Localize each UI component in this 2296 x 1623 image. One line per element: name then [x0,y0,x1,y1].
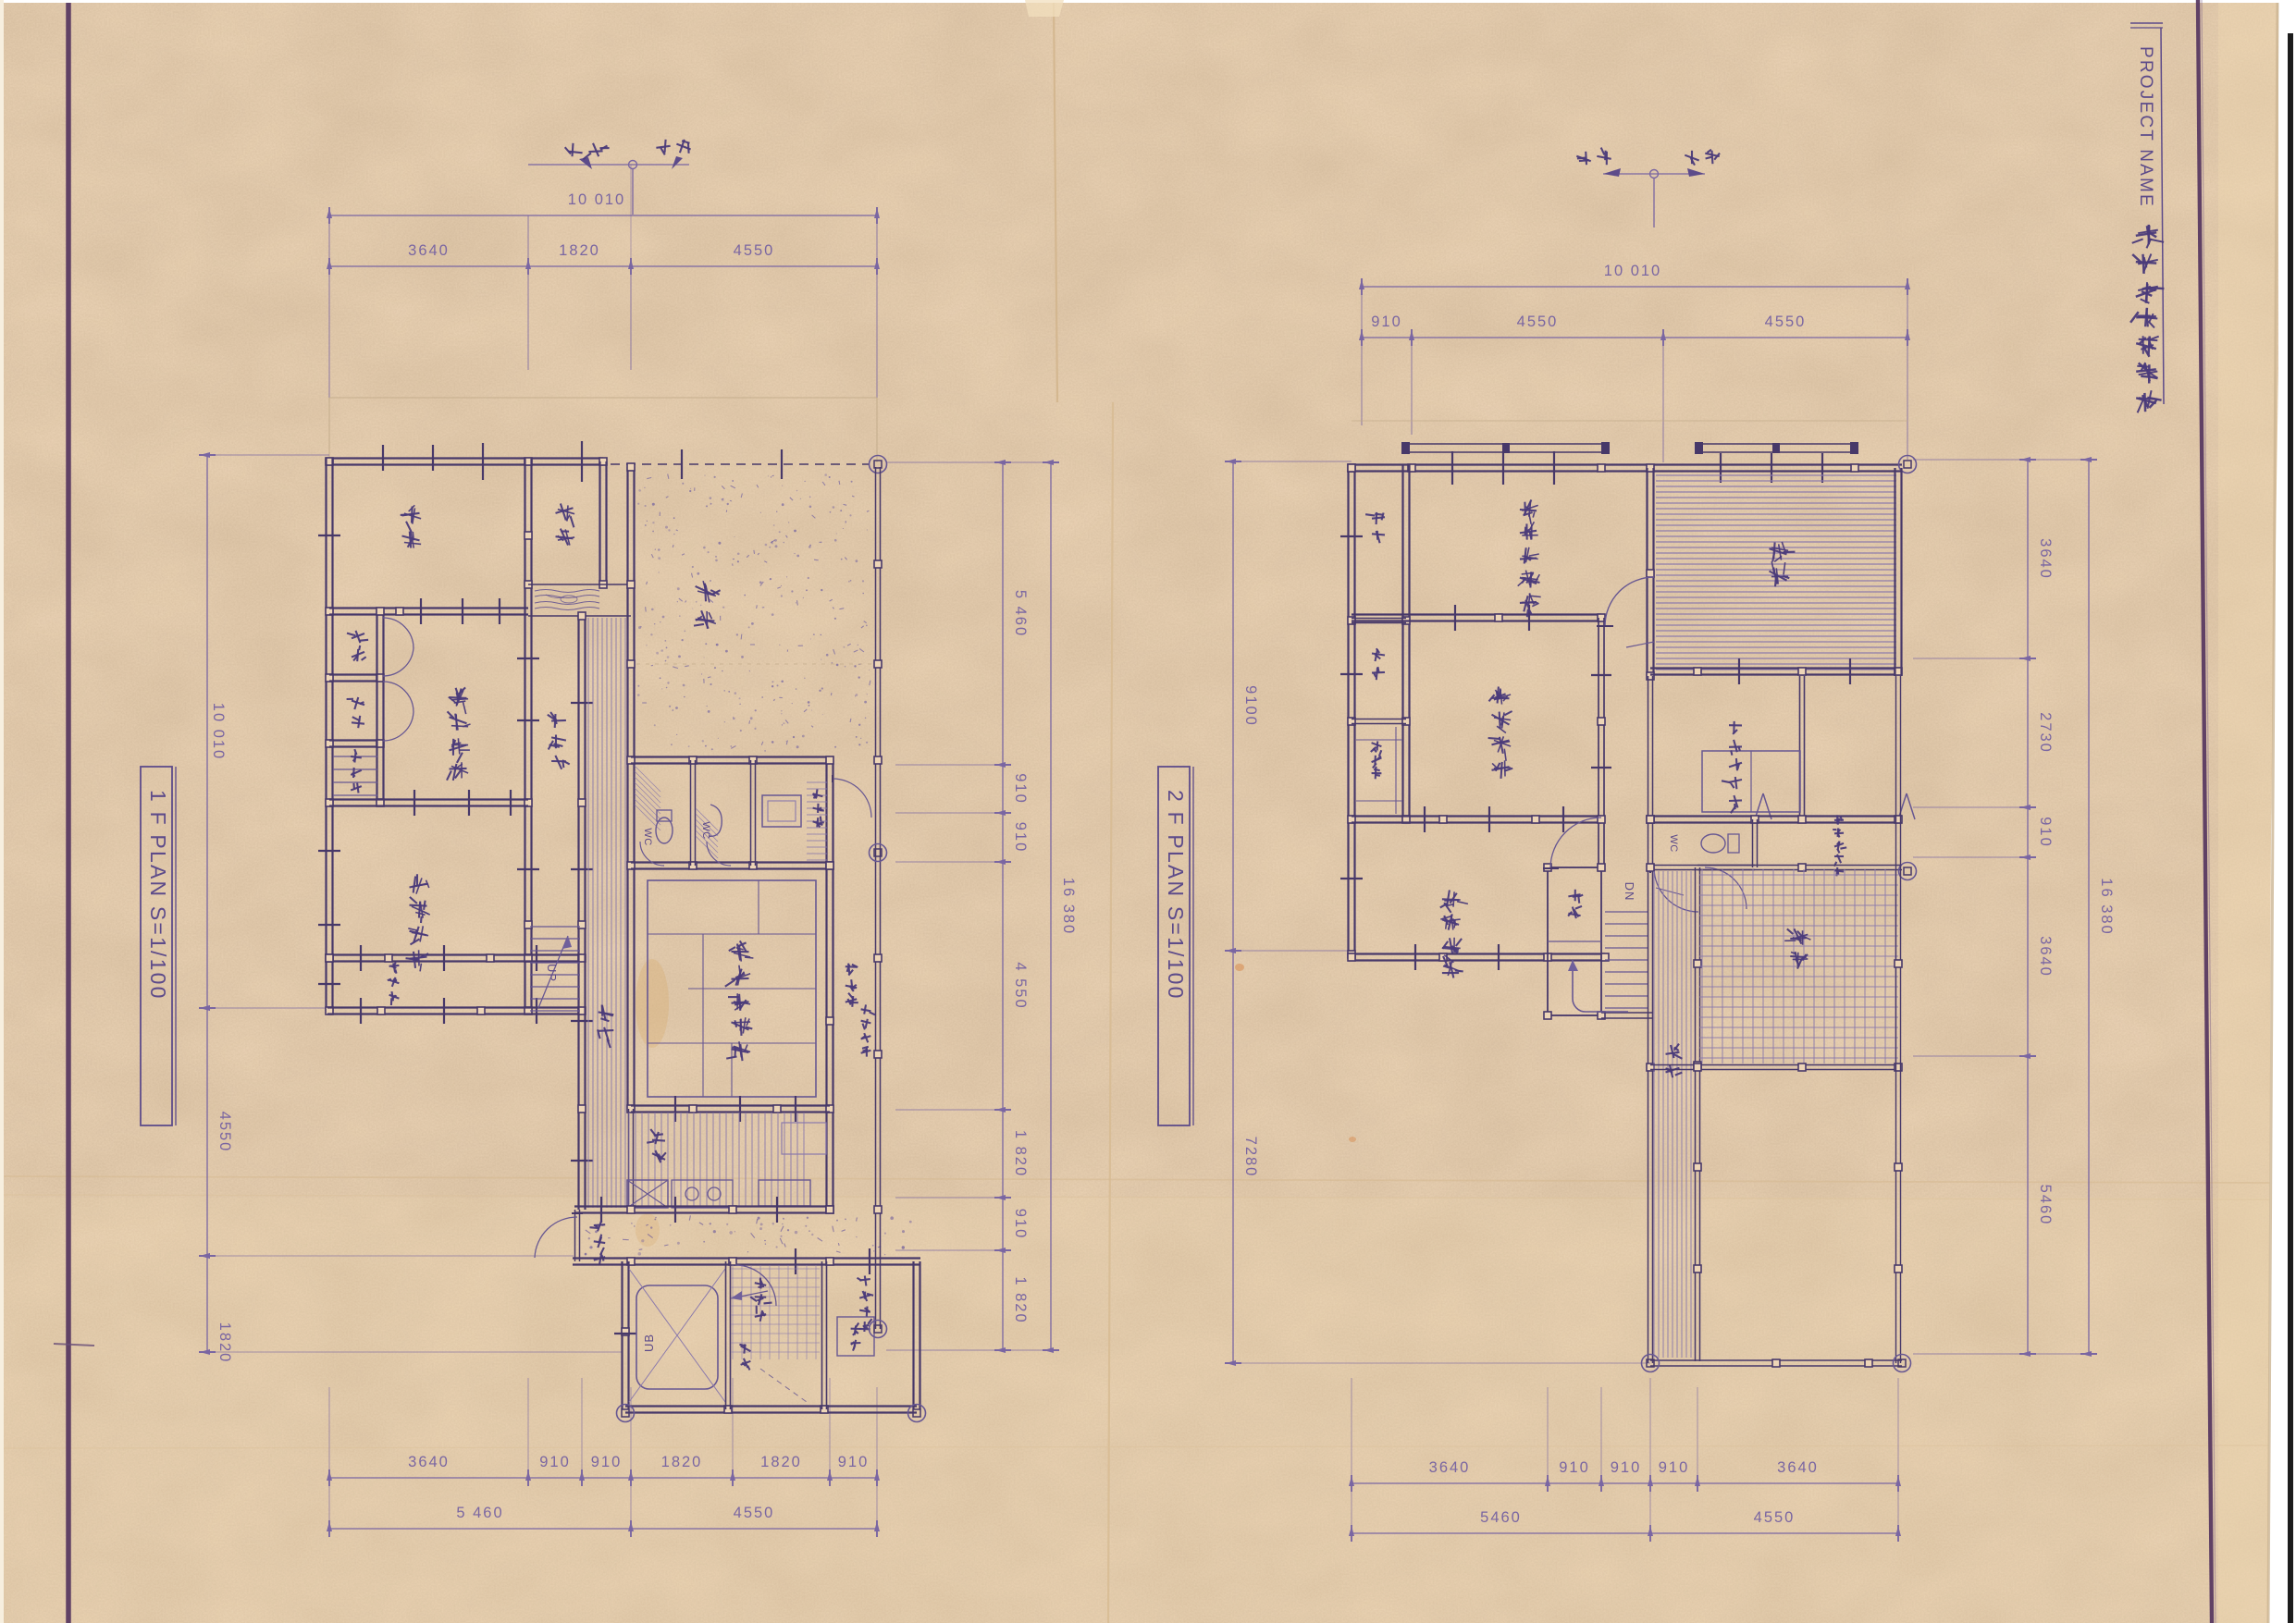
svg-text:910: 910 [539,1454,571,1470]
svg-text:3640: 3640 [408,1454,450,1470]
svg-text:10 010: 10 010 [568,191,625,208]
svg-text:1 820: 1 820 [1012,1130,1029,1177]
svg-text:PROJECT NAME: PROJECT NAME [2136,46,2155,208]
svg-text:5460: 5460 [1480,1509,1522,1526]
svg-text:2 F PLAN S=1/100: 2 F PLAN S=1/100 [1164,790,1188,1001]
svg-text:910: 910 [1659,1459,1690,1476]
svg-text:3640: 3640 [1429,1459,1471,1476]
svg-text:WC: WC [700,821,711,839]
svg-text:10 010: 10 010 [210,703,227,760]
svg-text:5 460: 5 460 [1012,590,1029,637]
svg-text:3640: 3640 [408,242,450,259]
svg-text:7280: 7280 [1242,1137,1259,1178]
svg-text:WC: WC [1668,834,1679,852]
svg-text:4550: 4550 [734,242,775,259]
svg-text:1820: 1820 [760,1454,802,1470]
svg-text:UB: UB [642,1334,656,1352]
svg-text:910: 910 [1559,1459,1590,1476]
svg-text:5 460: 5 460 [456,1505,503,1521]
svg-text:910: 910 [591,1454,623,1470]
svg-text:4550: 4550 [1517,314,1559,330]
svg-text:4550: 4550 [1765,314,1807,330]
svg-text:4550: 4550 [1754,1509,1796,1526]
svg-text:2730: 2730 [2037,712,2054,754]
svg-text:3640: 3640 [2037,538,2054,580]
svg-text:1820: 1820 [559,242,600,259]
svg-text:910: 910 [1611,1459,1642,1476]
svg-text:1 820: 1 820 [1012,1276,1029,1323]
svg-text:5460: 5460 [2037,1185,2054,1226]
svg-text:4 550: 4 550 [1012,962,1029,1009]
svg-text:16 380: 16 380 [2098,878,2115,935]
svg-text:UP: UP [545,964,559,982]
svg-text:910: 910 [1012,1209,1029,1240]
svg-text:10 010: 10 010 [1604,263,1661,279]
svg-text:4550: 4550 [216,1112,233,1153]
svg-text:9100: 9100 [1242,685,1259,727]
svg-text:1820: 1820 [661,1454,703,1470]
svg-text:4550: 4550 [734,1505,775,1521]
svg-text:910: 910 [2037,817,2054,848]
svg-text:DN: DN [1623,882,1636,902]
svg-text:3640: 3640 [2037,936,2054,977]
svg-text:16 380: 16 380 [1060,878,1077,935]
svg-text:3640: 3640 [1777,1459,1819,1476]
svg-text:910: 910 [1371,314,1402,330]
svg-text:910: 910 [1012,773,1029,805]
svg-text:1820: 1820 [216,1322,233,1364]
svg-text:910: 910 [838,1454,870,1470]
svg-text:1 F PLAN S=1/100: 1 F PLAN S=1/100 [146,790,170,1001]
svg-text:WC: WC [642,828,653,845]
svg-text:910: 910 [1012,822,1029,854]
